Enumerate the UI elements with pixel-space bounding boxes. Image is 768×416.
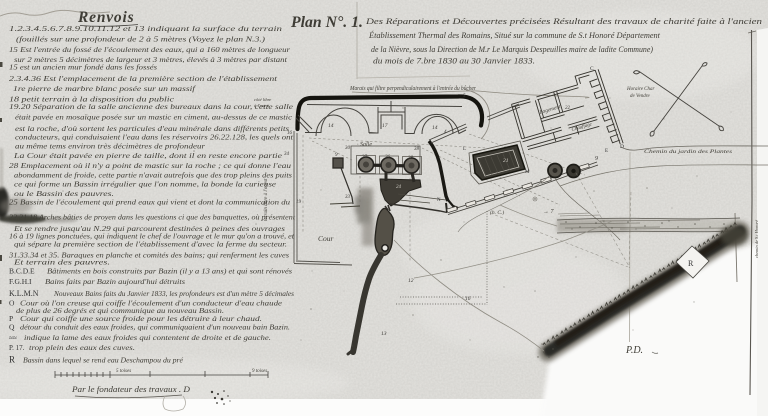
svg-text:9 toises: 9 toises: [252, 369, 267, 374]
svg-text:9: 9: [595, 156, 598, 162]
svg-text:K.L.M.N: K.L.M.N: [9, 289, 39, 298]
svg-text:ce qui forme un Bassin irrégul: ce qui forme un Bassin irrégulier que l'…: [14, 181, 276, 189]
svg-text:14: 14: [432, 124, 438, 131]
svg-text:au même tems environ très déci: au même tems environ très décimètres de …: [15, 143, 205, 151]
svg-text:D: D: [620, 144, 624, 150]
svg-text:Par le fondateur des travaux .: Par le fondateur des travaux . D: [71, 384, 191, 394]
svg-text:Cour qui coiffe une source fro: Cour qui coiffe une source froide pour l…: [20, 315, 262, 323]
svg-text:de la Nièvre, sous la Directio: de la Nièvre, sous la Direction de M.r L…: [371, 45, 653, 54]
svg-text:22.21.18 Arches bâties de proy: 22.21.18 Arches bâties de proyen dans le…: [9, 213, 296, 221]
svg-text:Horaire Char: Horaire Char: [626, 87, 655, 92]
svg-text:à l'ouest: à l'ouest: [254, 103, 270, 108]
svg-text:18 petit terrain à la disposit: 18 petit terrain à la disposition du pub…: [9, 95, 175, 103]
svg-text:détour du conduit des eaux fro: détour du conduit des eaux froides, qui …: [20, 324, 290, 332]
svg-text:16 à 19 lignes ponctuées, qui: 16 à 19 lignes ponctuées, qui indiquent …: [9, 232, 295, 240]
svg-text:→ 7: → 7: [543, 209, 555, 215]
svg-text:1re pierre de marbre blanc pos: 1re pierre de marbre blanc posée sur un …: [13, 85, 196, 93]
svg-text:19: 19: [296, 200, 302, 205]
svg-text:15 Est l'entrée du fossé de l': 15 Est l'entrée du fossé de l'écoulement…: [9, 46, 290, 54]
svg-text:L: L: [463, 147, 466, 152]
svg-text:abondamment de froide, cette p: abondamment de froide, cette partie n'av…: [14, 171, 292, 179]
svg-text:5 toises: 5 toises: [116, 369, 131, 374]
svg-text:Nouveaux Bains faits du Janvie: Nouveaux Bains faits du Janvier 1833, le…: [53, 290, 294, 298]
svg-text:≈≈: ≈≈: [9, 334, 17, 342]
svg-text:sur 2 mètres 5 décimètres de l: sur 2 mètres 5 décimètres de largeur et …: [14, 56, 288, 64]
svg-text:du mois de 7.bre 1830 au 30 Ja: du mois de 7.bre 1830 au 30 Janvier 1833…: [373, 57, 535, 66]
svg-text:22: 22: [565, 106, 571, 111]
svg-text:1.2.3.4.5.6.7.8.9.10.11.12 et: 1.2.3.4.5.6.7.8.9.10.11.12 et 13 indiqua…: [9, 25, 283, 33]
svg-text:Des Réparations et Découvertes: Des Réparations et Découvertes précisées…: [365, 17, 762, 26]
svg-text:33: 33: [345, 195, 351, 200]
svg-text:Cour: Cour: [318, 234, 334, 243]
svg-text:Renvois: Renvois: [77, 9, 134, 26]
svg-text:P. 17.: P. 17.: [9, 344, 25, 352]
svg-text:M: M: [525, 170, 530, 175]
svg-text:(fouillés sur une profondeur d: (fouillés sur une profondeur de 2 à 5 mè…: [16, 36, 266, 44]
svg-text:· Salle: · Salle: [357, 142, 372, 148]
svg-text:25 Bassin de l'écoulement qui: 25 Bassin de l'écoulement qui prend eaux…: [9, 199, 291, 207]
svg-text:Chemin du jardin des Plantes: Chemin du jardin des Plantes: [644, 150, 732, 155]
svg-text:de Vendre: de Vendre: [630, 94, 650, 99]
svg-text:R: R: [688, 259, 694, 268]
svg-text:O: O: [9, 299, 15, 308]
svg-text:ou le Bassin des pauvres.: ou le Bassin des pauvres.: [14, 190, 114, 198]
svg-text:27: 27: [362, 155, 368, 160]
svg-text:Plan N°. 1.: Plan N°. 1.: [291, 14, 363, 31]
svg-text:19.20 Séparation de la salle a: 19.20 Séparation de la salle ancienne de…: [9, 103, 293, 111]
svg-text:côté libre: côté libre: [254, 97, 271, 102]
svg-text:14: 14: [328, 122, 334, 129]
svg-text:B.C.D.E: B.C.D.E: [9, 267, 35, 276]
svg-text:N: N: [437, 198, 441, 203]
svg-text:R: R: [9, 354, 15, 364]
svg-text:P.D.: P.D.: [625, 345, 643, 356]
svg-text:était pavée en mosaïque posée: était pavée en mosaïque posée sur un mas…: [15, 114, 293, 122]
svg-text:13: 13: [381, 331, 387, 337]
svg-text:est la roche, d'où sortent les: est la roche, d'où sortent les particule…: [15, 125, 289, 133]
svg-text:qui sépare la première section: qui sépare la première section de l'étab…: [14, 240, 287, 248]
svg-text:de plus de 26 degrés et qui co: de plus de 26 degrés et qui communique a…: [16, 307, 224, 315]
svg-text:E: E: [605, 149, 608, 154]
svg-text:12: 12: [408, 278, 414, 284]
svg-text:Bains faits par Bazin aujourd': Bains faits par Bazin aujourd'hui détrui…: [45, 278, 185, 286]
svg-text:(h. C.): (h. C.): [490, 209, 504, 216]
svg-text:2.3.4.36 Est l'emplacement de: 2.3.4.36 Est l'emplacement de la premièr…: [9, 75, 278, 83]
svg-text:30: 30: [345, 146, 351, 151]
svg-text:28 Emplacement où il n'y a poi: 28 Emplacement où il n'y a point de mast…: [9, 162, 292, 170]
svg-text:16: 16: [287, 131, 293, 136]
svg-text:conducteurs, qui conduisaient: conducteurs, qui conduisaient l'eau dans…: [15, 134, 294, 142]
svg-text:indique la lame des eaux froid: indique la lame des eaux froides qui con…: [24, 334, 271, 342]
svg-text:chemin de S.t Honoré: chemin de S.t Honoré: [754, 219, 759, 258]
svg-text:La Cour était pavée en pierre: La Cour était pavée en pierre de taille,…: [13, 152, 282, 160]
svg-text:15 est un ancien mur fondé dan: 15 est un ancien mur fondé dans les foss…: [9, 64, 157, 72]
svg-text:Bassin dans lequel se rend eau: Bassin dans lequel se rend eau Deschampo…: [23, 356, 184, 364]
svg-text:F.G.H.I: F.G.H.I: [9, 277, 32, 286]
svg-text:terrain libre à l'ouest: terrain libre à l'ouest: [264, 178, 269, 221]
svg-text:21: 21: [503, 158, 509, 164]
svg-text:C: C: [590, 66, 594, 72]
svg-text:Établissement Thermal des Roma: Établissement Thermal des Romains, Situé…: [368, 30, 661, 40]
svg-text:Bâtiments en bois construits p: Bâtiments en bois construits par Bazin (…: [47, 268, 292, 276]
svg-text:38: 38: [414, 147, 420, 152]
svg-text:26: 26: [385, 155, 391, 160]
svg-text:28: 28: [408, 156, 414, 161]
svg-text:24: 24: [396, 185, 402, 190]
svg-text:34: 34: [284, 152, 290, 157]
svg-text:trop plein des eaux des cuves.: trop plein des eaux des cuves.: [29, 344, 135, 352]
svg-text:Q: Q: [9, 323, 15, 332]
svg-text:Et terrain des pauvres.: Et terrain des pauvres.: [12, 258, 110, 266]
svg-text:17: 17: [382, 123, 388, 129]
